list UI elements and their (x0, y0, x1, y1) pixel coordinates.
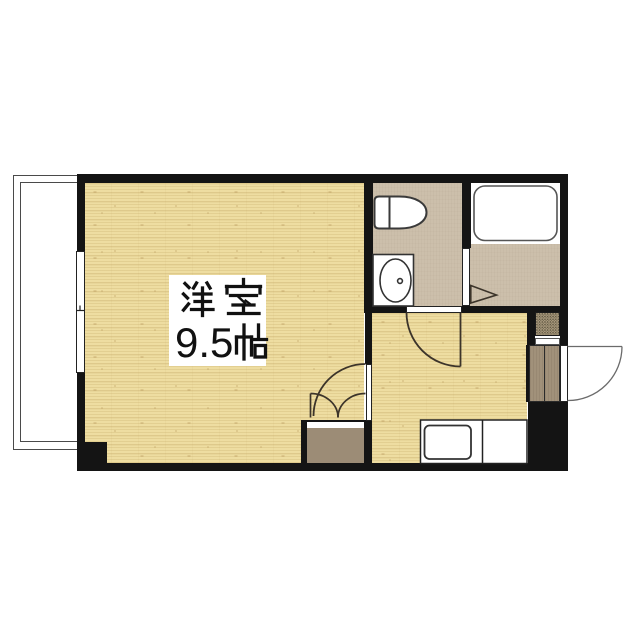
svg-text:9.5: 9.5 (175, 319, 233, 366)
